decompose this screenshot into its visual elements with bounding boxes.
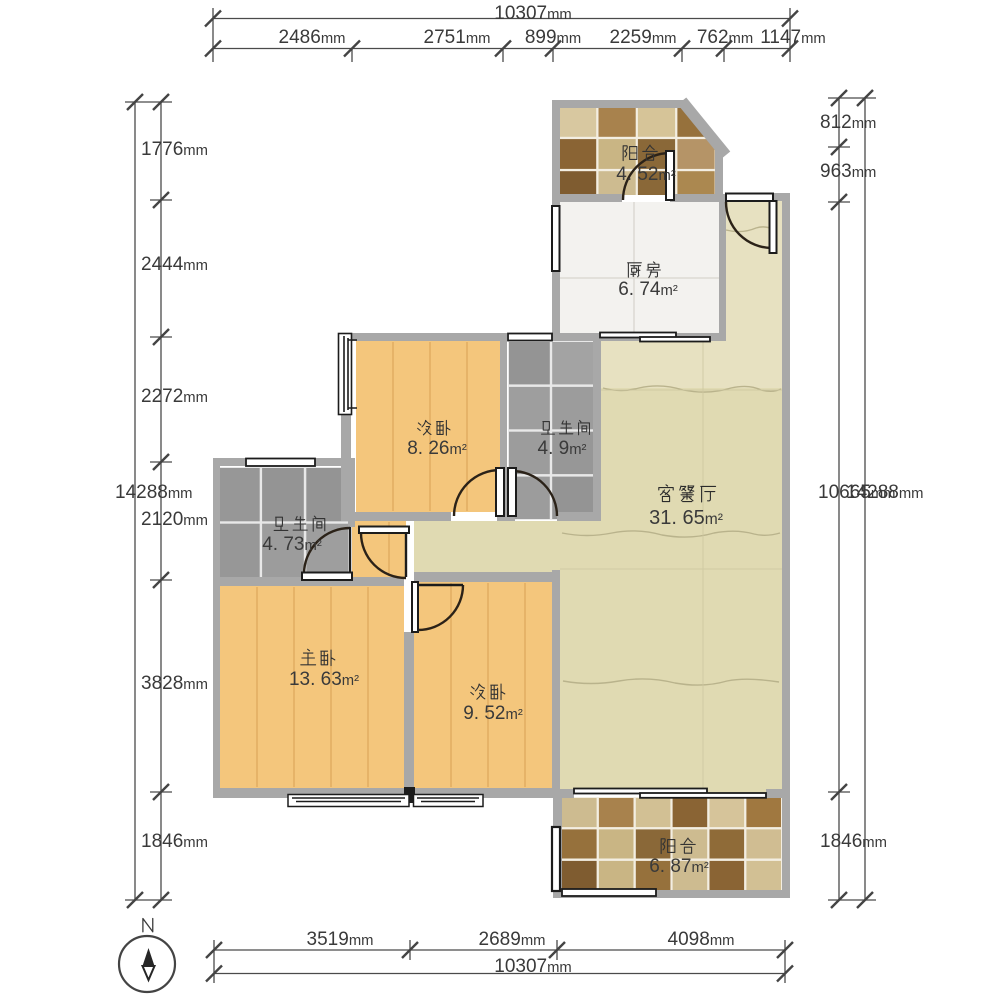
svg-text:2751mm: 2751mm [424,27,491,48]
svg-text:2486mm: 2486mm [279,27,346,48]
svg-text:1147mm: 1147mm [760,27,826,48]
svg-text:31. 65m²: 31. 65m² [649,507,723,529]
svg-text:2120mm: 2120mm [141,509,208,530]
svg-text:9. 52m²: 9. 52m² [463,703,523,724]
svg-text:14288mm: 14288mm [115,482,193,503]
svg-text:812mm: 812mm [820,112,876,133]
svg-text:3828mm: 3828mm [141,673,208,694]
svg-text:899mm: 899mm [525,27,581,48]
svg-text:14288mm: 14288mm [846,482,924,503]
svg-text:10307mm: 10307mm [494,3,572,24]
svg-text:1846mm: 1846mm [141,831,208,852]
svg-text:2272mm: 2272mm [141,386,208,407]
svg-text:13. 63m²: 13. 63m² [289,669,359,690]
svg-text:1846mm: 1846mm [820,831,887,852]
svg-text:8. 26m²: 8. 26m² [407,438,467,459]
svg-text:4. 52m²: 4. 52m² [616,164,676,185]
svg-text:3519mm: 3519mm [307,929,374,950]
svg-text:1776mm: 1776mm [141,139,208,160]
svg-text:4. 73m²: 4. 73m² [262,534,322,555]
svg-text:2444mm: 2444mm [141,254,208,275]
svg-text:6. 87m²: 6. 87m² [649,856,709,877]
svg-text:2689mm: 2689mm [479,929,546,950]
svg-text:4098mm: 4098mm [668,929,735,950]
svg-text:10307mm: 10307mm [494,956,572,977]
svg-text:2259mm: 2259mm [610,27,677,48]
svg-text:963mm: 963mm [820,161,876,182]
svg-text:4. 9m²: 4. 9m² [538,438,587,459]
svg-text:762mm: 762mm [697,27,753,48]
svg-text:6. 74m²: 6. 74m² [618,279,678,300]
